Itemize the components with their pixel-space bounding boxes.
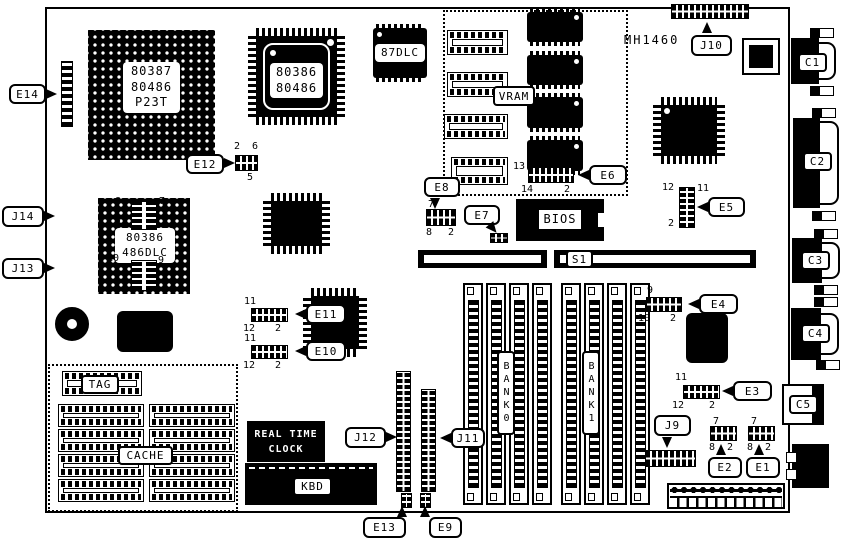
cache-label: CACHE [118,446,173,465]
e14-header [61,61,73,127]
pin1-dot [377,32,382,37]
latch [634,493,641,501]
bios-text: BIOS [544,212,577,228]
j10-arrow [702,22,712,33]
qfp-chip-right [653,97,725,164]
e10-pin-2: 2 [275,361,281,371]
screw-tab [810,28,834,38]
pin-col-right [322,201,330,246]
socket-cavity [154,488,230,493]
pga-cpu-chip: 80387 80486 P23T [88,30,215,160]
pga-cpu-label: 80387 80486 P23T [123,62,180,113]
e6-arrow [578,170,589,180]
motherboard-diagram: E14 80387 80486 P23T 80386 80486 87DLC 2… [0,0,843,551]
pga-cpu-line1: 80387 [131,64,172,80]
qfp-chip-middle [263,193,330,254]
vram-socket-3 [444,114,508,139]
e3-jumper [683,385,720,399]
pin-row-bottom [256,117,337,125]
c2-port-label: C2 [803,152,832,171]
j14-pin-7: 7 [159,197,165,207]
pga-cpu-line3: P23T [135,95,168,111]
e5-pin-12: 12 [662,183,674,193]
socket-cavity [452,39,503,46]
dlc-cpu-line1: 80386 [126,231,164,245]
simm-socket-1 [463,283,483,505]
screw-tab [812,211,836,221]
e11-pin-2: 2 [275,324,281,334]
keyboard-port-tab [786,452,797,463]
e2-arrow [716,444,726,455]
latch [588,287,595,295]
e12-jumper [235,155,258,171]
rtc-line2: CLOCK [268,442,303,457]
screw-tab [814,297,838,307]
power-box-row [670,496,782,507]
pga-cpu-line2: 80486 [131,80,172,96]
e9-label: E9 [429,517,462,538]
e8-jumper [426,209,456,226]
qfp-cpu-label: 80386 80486 [270,63,323,98]
e4-jumper [646,297,682,312]
e2-pin-2: 2 [727,443,733,453]
e14-label: E14 [9,84,46,104]
screw-tab [816,360,840,370]
vram-chip-3 [527,97,583,128]
e6-jumper [528,167,574,183]
buzzer [55,307,89,341]
e5-arrow [697,202,708,212]
socket-cavity [154,438,230,443]
slot-left [418,250,547,268]
cache-socket-7 [58,479,144,502]
latch [634,287,641,295]
e8-arrow [430,198,440,209]
keyboard-port [792,444,829,488]
bios-label: BIOS [539,210,581,229]
pin-row-top [661,97,717,105]
e10-label: E10 [306,341,346,361]
e1-jumper [748,426,775,441]
e5-jumper [679,187,695,228]
j13-arrow [44,263,55,273]
e4-arrow [688,299,699,309]
e14-arrow [46,89,57,99]
j13-header [131,260,157,291]
socket-cavity [154,413,230,418]
e1-pin-2: 2 [765,443,771,453]
e5-pin-2: 2 [668,219,674,229]
misc-chip-right [686,313,728,363]
j14-header [131,201,157,230]
latch [513,493,520,501]
j11-header [421,389,436,492]
e6-pin-14: 14 [521,185,533,195]
e3-pin-2: 2 [709,401,715,411]
e3-pin-12: 12 [672,401,684,411]
pin-row-top [256,28,337,36]
power-connector [667,483,785,509]
pin1-dot [327,39,334,46]
j13-pin-2: 2 [113,281,119,291]
pin-col-left [248,36,256,117]
j10-header [671,4,749,19]
pin-row-bottom [271,246,322,254]
j12-arrow [386,432,397,442]
j14-label: J14 [2,206,44,227]
e1-arrow [754,444,764,455]
pin1-dot [574,59,579,64]
s1-label: S1 [566,250,593,268]
screw-tab [812,108,836,118]
socket-cavity [63,488,139,493]
latch [565,287,572,295]
bios-chip: BIOS [516,199,604,241]
pin-row-bottom [661,156,717,164]
latch [565,493,572,501]
e1-label: E1 [746,457,780,478]
e4-pin-9: 9 [647,286,653,296]
socket-cavity [63,438,139,443]
vram-chip-1 [527,12,583,42]
vram-socket-1 [447,30,508,55]
pin1-dot [574,101,579,106]
pin-row-top [271,193,322,201]
e13-arrow [397,506,407,517]
pin-col-right [717,105,725,156]
e10-arrow [295,346,306,356]
fpu-label: 87DLC [375,44,425,62]
latch [536,287,543,295]
e10-pin-11: 11 [244,334,256,344]
j9-header [645,450,696,467]
e11-label: E11 [306,304,346,324]
e10-jumper [251,345,288,359]
fpu-chip: 87DLC [373,28,427,78]
socket-cavity [449,123,503,130]
latch [611,287,618,295]
e8-label: E8 [424,177,460,197]
rtc-line1: REAL TIME [254,427,317,442]
j14-pin-8: 8 [115,197,121,207]
e12-pin-6: 6 [252,142,258,152]
e6-label: E6 [589,165,627,185]
e13-label: E13 [363,517,406,538]
e2-jumper [710,426,737,441]
board-model: MH1460 [624,34,679,46]
simm-socket-7 [607,283,627,505]
j13-pin-10: 10 [107,254,119,264]
e11-jumper [251,308,288,322]
e10-pin-12: 12 [243,361,255,371]
e12-pin-2: 2 [234,142,240,152]
e3-pin-11: 11 [675,373,687,383]
e12-pin-5: 5 [247,173,253,183]
latch [490,493,497,501]
c4-port-label: C4 [801,324,830,343]
j9-arrow [662,437,672,448]
latch [490,287,497,295]
simm-socket-5 [561,283,581,505]
e5-label: E5 [708,197,745,217]
e12-label: E12 [186,154,224,174]
latch [513,287,520,295]
cache-socket-2 [149,404,235,427]
e8-pin-8: 8 [426,228,432,238]
e1-pin-8: 8 [747,443,753,453]
e4-pin-2: 2 [670,314,676,324]
e9-arrow [420,506,430,517]
dlc-cpu-label: 80386 486DLC [115,228,175,263]
latch [536,493,543,501]
c5-port-label: C5 [789,395,818,414]
latch [611,493,618,501]
e2-pin-7: 7 [713,417,719,427]
e4-pin-10: 10 [638,314,650,324]
latch [467,287,474,295]
j10-label: J10 [691,35,732,56]
j11-arrow [440,433,451,443]
socket-cavity [63,413,139,418]
j12-header [396,371,411,492]
j9-label: J9 [654,415,691,436]
cache-socket-8 [149,479,235,502]
bank0-label: BANK0 [497,351,515,435]
e3-label: E3 [733,381,772,401]
j13-label: J13 [2,258,44,279]
plcc-chip [742,38,780,75]
pin-col-right [359,296,367,349]
misc-chip-left [117,311,173,352]
qfp-cpu-chip: 80386 80486 [248,28,345,125]
e6-pin-2: 2 [564,185,570,195]
pin1-dot [664,108,670,114]
j12-label: J12 [345,427,386,448]
c1-port-label: C1 [798,53,827,72]
latch [588,493,595,501]
e11-arrow [295,309,306,319]
e2-label: E2 [708,457,742,478]
e6-pin-13: 13 [513,162,525,172]
vram-chip-2 [527,55,583,85]
socket-cavity [456,166,503,176]
e4-label: E4 [699,294,738,314]
j14-arrow [44,211,55,221]
cache-socket-1 [58,404,144,427]
e5-pin-11: 11 [697,184,709,194]
e1-pin-7: 7 [751,417,757,427]
rtc-chip: REAL TIME CLOCK [247,421,325,462]
e3-arrow [722,386,733,396]
j11-label: J11 [451,428,485,448]
keyboard-port-tab [786,469,797,480]
bios-notch [598,213,606,227]
c3-port-label: C3 [801,251,830,270]
e2-pin-8: 8 [709,443,715,453]
fpu-text: 87DLC [381,46,419,60]
screw-tab [810,86,834,96]
latch [467,493,474,501]
pin-col-left [653,105,661,156]
screw-tab [814,285,838,295]
power-pin-row [670,485,782,496]
bank1-label: BANK1 [582,351,600,435]
j14-pin-2: 2 [115,219,121,229]
pin-col-left [263,201,271,246]
qfp-cpu-line1: 80386 [276,65,317,81]
kbd-label: KBD [293,477,332,496]
tag-label: TAG [81,375,119,394]
pin1-dot [574,15,579,20]
e11-pin-11: 11 [244,297,256,307]
chip-body [271,201,322,246]
e12-arrow [224,158,235,168]
pin-row-top [311,288,359,296]
corner-dot [270,50,276,56]
vram-label: VRAM [493,86,535,106]
e8-pin-2: 2 [448,228,454,238]
simm-socket-4 [532,283,552,505]
pin1-dot [574,144,579,149]
qfp-cpu-line2: 80486 [276,81,317,97]
pin-col-right [337,36,345,117]
j13-pin-9: 9 [158,256,164,266]
